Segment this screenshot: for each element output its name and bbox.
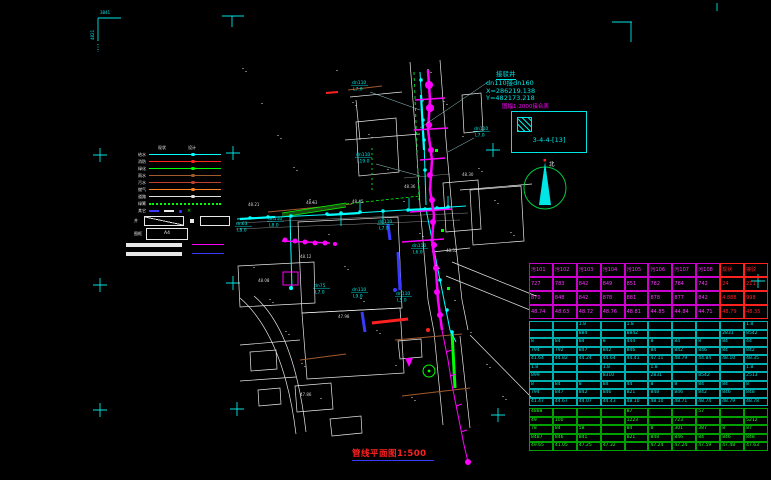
corner-text-side: 4821 — [90, 29, 95, 40]
legend-row-label: 消防 — [126, 159, 146, 165]
blue-line-icon — [192, 253, 224, 254]
table-cell: 84 — [720, 381, 744, 390]
legend-shape-label: 井 — [126, 218, 138, 224]
table-cell: 842 — [577, 389, 601, 398]
table-cell: 2513 — [744, 372, 768, 381]
legend-symbol-label: 其它 — [126, 208, 146, 214]
table-cell: 44 — [744, 338, 768, 347]
table-cell: 211 — [744, 277, 768, 291]
legend-line-marker — [191, 167, 195, 170]
table-cell — [696, 364, 720, 373]
micro-text-speck — [446, 104, 448, 105]
drawing-title-block: 管线平面图1:500 — [352, 447, 434, 461]
micro-text-speck — [419, 233, 421, 234]
table-cell: 4888 — [529, 408, 553, 417]
spot-elevation: 48.08 — [258, 278, 270, 283]
micro-text-speck — [269, 299, 271, 300]
micro-text-speck — [462, 136, 464, 137]
table-cell: 污105 — [625, 263, 649, 277]
grid-cross-icon — [93, 148, 107, 162]
micro-text-speck — [414, 400, 416, 401]
title-underline — [352, 460, 434, 461]
table-cell: 899 — [529, 372, 553, 381]
table-cell: 878 — [601, 291, 625, 305]
table-cell: 84 — [553, 425, 577, 434]
table-cell: 444 — [625, 338, 649, 347]
table-cell — [601, 321, 625, 330]
table-cell: 44.67 — [553, 398, 577, 407]
table-cell: 44.82 — [553, 355, 577, 364]
table-cell: 884 — [577, 330, 601, 339]
table-cell — [553, 321, 577, 330]
table-cell — [696, 417, 720, 426]
micro-text-speck — [502, 396, 504, 397]
table-cell: 8 — [648, 338, 672, 347]
micro-text-speck — [494, 200, 496, 201]
micro-text-speck — [245, 71, 247, 72]
legend-row-label: 给水 — [126, 152, 146, 158]
table-cell: 47.32 — [601, 442, 625, 451]
table-cell — [577, 408, 601, 417]
legend-header-existing: 现状 — [158, 145, 166, 151]
table-cell: 742 — [696, 277, 720, 291]
legend-symbol-row: 其它 × — [126, 207, 236, 215]
legend-a4-row: 图框 A4 — [126, 227, 236, 240]
table-cell: 47.11 — [648, 355, 672, 364]
table-cell: 48.35 — [744, 355, 768, 364]
legend-line-sample — [149, 182, 221, 183]
legend-line-sample — [149, 175, 221, 176]
micro-text-speck — [242, 68, 244, 69]
table-cell: 48.35 — [744, 305, 768, 319]
pipe-callouts: dn110L7.0dn110L7.0dn110L19.0dn63L8.0dn11… — [235, 80, 490, 304]
table-cell: 846 — [601, 389, 625, 398]
table-cell: 848 — [648, 434, 672, 443]
table-cell: 49.65 — [529, 442, 553, 451]
table-cell: 846 — [696, 347, 720, 356]
sewer-pipes — [282, 70, 471, 465]
table-cell: 100 — [553, 417, 577, 426]
micro-text-speck — [253, 267, 255, 268]
table-cell: 1.8 — [601, 364, 625, 373]
legend-line-marker — [191, 153, 195, 156]
table-cell: 821 — [625, 389, 649, 398]
table-cell: 84 — [625, 425, 649, 434]
table-cell: 污106 — [648, 263, 672, 277]
table-cell: 870 — [529, 291, 553, 305]
micro-text-speck — [470, 332, 472, 333]
table-cell: 污108 — [696, 263, 720, 277]
spot-elevation: 48.12 — [300, 254, 312, 259]
svg-text:L19.0: L19.0 — [357, 159, 370, 165]
sheet-hatch-icon — [517, 117, 532, 132]
micro-text-speck — [395, 365, 397, 366]
table-cell: 1.8 — [648, 364, 672, 373]
spot-elevation: 48.45 — [352, 199, 364, 204]
table-cell: 84 — [672, 338, 696, 347]
svg-text:L5.0: L5.0 — [397, 298, 407, 304]
table-cell — [720, 408, 744, 417]
table-cell: 48.10 — [720, 355, 744, 364]
well-data-table: 污101污102污103污104污105污106污107污108现状接驳7277… — [529, 263, 768, 453]
table-cell: 851 — [625, 277, 649, 291]
box-symbol-icon — [200, 216, 230, 226]
table-cell: 881 — [625, 291, 649, 305]
micro-text-speck — [513, 235, 515, 236]
legend-row: 道路 — [126, 193, 236, 200]
table-cell: 842 — [577, 277, 601, 291]
table-cell: 842 — [696, 389, 720, 398]
table-cell: 1223 — [625, 417, 649, 426]
table-cell: 301 — [672, 425, 696, 434]
table-cell: 44.84 — [672, 305, 696, 319]
table-cell — [672, 408, 696, 417]
table-cell: 57 — [696, 408, 720, 417]
legend-row-label: 污水 — [126, 180, 146, 186]
legend-line-sample — [149, 189, 221, 190]
table-cell: 污103 — [577, 263, 601, 277]
table-cell: 846 — [625, 347, 649, 356]
table-cell — [625, 364, 649, 373]
grid-cross-icon — [486, 143, 500, 157]
table-cell — [696, 330, 720, 339]
grid-cross-icon — [93, 278, 107, 292]
table-section-green: 4888875749100122372352127884588483013878… — [529, 408, 768, 451]
magenta-line-icon — [192, 244, 224, 245]
table-cell — [529, 321, 553, 330]
table-cell: 1.8 — [529, 364, 553, 373]
table-cell: 821 — [625, 434, 649, 443]
table-cell: 污107 — [672, 263, 696, 277]
table-cell: 2831 — [648, 372, 672, 381]
micro-text-speck — [427, 69, 429, 70]
table-cell: 58 — [577, 425, 601, 434]
table-cell — [601, 434, 625, 443]
table-cell: 8 — [577, 381, 601, 390]
table-cell: 848 — [744, 434, 768, 443]
micro-text-speck — [376, 330, 378, 331]
table-cell — [601, 417, 625, 426]
micro-text-speck — [435, 265, 437, 266]
table-cell: 846 — [720, 434, 744, 443]
table-cell: 47.24 — [672, 442, 696, 451]
micro-text-speck — [360, 298, 362, 299]
table-cell: 48.74 — [696, 398, 720, 407]
table-cell: 接驳 — [744, 263, 768, 277]
table-cell: 847 — [553, 389, 577, 398]
table-cell — [720, 417, 744, 426]
table-cell — [577, 417, 601, 426]
micro-text-speck — [285, 331, 287, 332]
table-cell: 849 — [601, 277, 625, 291]
micro-text-speck — [352, 102, 354, 103]
table-cell: 48.10 — [625, 398, 649, 407]
table-cell — [648, 330, 672, 339]
white-dash-icon — [164, 210, 174, 212]
table-cell: 848 — [648, 389, 672, 398]
table-cell — [529, 330, 553, 339]
table-cell — [720, 321, 744, 330]
micro-text-speck — [497, 203, 499, 204]
sheet-index-box: 3-4-4-[13] — [511, 111, 587, 153]
micro-text-speck — [347, 269, 349, 270]
table-cell: 848 — [744, 389, 768, 398]
table-cell: 842 — [601, 347, 625, 356]
table-cell: 48.72 — [577, 305, 601, 319]
table-cell: 84 — [720, 338, 744, 347]
table-cell: 44.85 — [648, 305, 672, 319]
table-cell: 84 — [696, 434, 720, 443]
spot-elevation: 48.30 — [462, 172, 474, 177]
micro-text-speck — [309, 199, 311, 200]
table-cell: 1.8 — [577, 321, 601, 330]
table-cell — [720, 364, 744, 373]
pipe-callout: dn110L5.0 — [395, 291, 412, 304]
table-cell — [672, 372, 696, 381]
micro-text-speck — [272, 302, 274, 303]
legend-header-design: 设计 — [188, 145, 196, 151]
legend-bar-row-1 — [126, 240, 236, 249]
legend-a4-label: 图框 — [126, 231, 142, 237]
table-cell: 847 — [577, 347, 601, 356]
table-cell: 44.41 — [625, 355, 649, 364]
table-cell — [648, 408, 672, 417]
north-label: 北 — [549, 160, 555, 168]
micro-text-speck — [328, 234, 330, 235]
micro-text-speck — [301, 363, 303, 364]
micro-text-speck — [438, 268, 440, 269]
micro-text-speck — [379, 333, 381, 334]
table-cell: 48.79 — [720, 305, 744, 319]
registration-marks — [98, 3, 717, 52]
map-text-speckles — [242, 68, 515, 401]
table-cell: 723 — [672, 417, 696, 426]
pipe-callout: dn110L7.0 — [351, 80, 368, 93]
table-cell: 44.43 — [601, 398, 625, 407]
table-cell — [553, 364, 577, 373]
micro-text-speck — [293, 167, 295, 168]
table-cell: 87 — [625, 408, 649, 417]
spot-elevation: 48.36 — [404, 184, 416, 189]
table-cell: 48.76 — [601, 305, 625, 319]
table-cell — [744, 408, 768, 417]
table-cell: 8 — [696, 338, 720, 347]
table-cell: 842 — [672, 347, 696, 356]
table-cell: 842 — [744, 347, 768, 356]
table-cell: 842 — [577, 291, 601, 305]
micro-text-speck — [510, 232, 512, 233]
micro-text-speck — [430, 72, 432, 73]
table-section-magenta: 污101污102污103污104污105污106污107污108现状接驳7277… — [529, 263, 768, 319]
micro-text-speck — [277, 135, 279, 136]
building-outlines — [238, 60, 536, 436]
table-cell: 24 — [720, 277, 744, 291]
pipe-callout: dn110L7.0 — [377, 219, 394, 232]
micro-text-speck — [355, 105, 357, 106]
legend-line-marker — [191, 174, 195, 177]
table-cell: 48.63 — [553, 305, 577, 319]
pipe-callout: dn75L7.0 — [313, 283, 330, 296]
table-section-cyan: 1.81.81.88848842283185428848484448848844… — [529, 321, 768, 406]
table-cell: 877 — [672, 291, 696, 305]
legend-line-sample — [149, 196, 221, 197]
micro-text-speck — [280, 138, 282, 139]
micro-text-speck — [422, 236, 424, 237]
svg-text:L7.0: L7.0 — [315, 290, 325, 296]
table-cell: 842 — [696, 291, 720, 305]
legend-shape-row: 井 — [126, 215, 236, 227]
legend-line-sample — [149, 154, 221, 155]
micro-text-speck — [312, 202, 314, 203]
table-cell: 848 — [553, 291, 577, 305]
table-cell: 8 — [744, 381, 768, 390]
sheet-index-note: 图幅1:2000接合表 — [502, 102, 549, 110]
table-cell: 8 — [672, 381, 696, 390]
table-cell: 41.64 — [529, 355, 553, 364]
table-cell: 48.10 — [648, 398, 672, 407]
micro-text-speck — [336, 70, 338, 71]
legend-row: 燃气 — [126, 186, 236, 193]
legend-row-label: 雨水 — [126, 173, 146, 179]
spot-elevation: 47.86 — [300, 392, 312, 397]
svg-text:L7.0: L7.0 — [353, 87, 363, 93]
legend-line-marker — [191, 160, 195, 163]
legend-row-label: 道路 — [126, 194, 146, 200]
micro-text-speck — [363, 301, 365, 302]
corner-text-top: 3841 — [100, 10, 111, 15]
table-cell: 8842 — [625, 330, 649, 339]
table-cell: 47.25 — [577, 442, 601, 451]
svg-text:L8.0: L8.0 — [269, 223, 279, 229]
table-cell: 841 — [577, 434, 601, 443]
table-cell — [577, 372, 601, 381]
pipe-callout: dn110L19.0 — [355, 152, 372, 165]
table-cell: 1.8 — [625, 321, 649, 330]
white-bar-icon — [126, 243, 182, 247]
svg-text:L7.0: L7.0 — [475, 133, 485, 139]
table-cell: 387 — [696, 425, 720, 434]
spot-elevation: 48.21 — [248, 202, 260, 207]
legend-line-sample — [149, 203, 221, 205]
table-cell: 8542 — [744, 330, 768, 339]
micro-text-speck — [478, 168, 480, 169]
table-cell — [577, 364, 601, 373]
table-cell: 783 — [553, 277, 577, 291]
table-cell — [672, 364, 696, 373]
table-cell: 5212 — [744, 417, 768, 426]
table-cell — [553, 372, 577, 381]
table-cell: 782 — [648, 277, 672, 291]
table-cell: 8 — [648, 425, 672, 434]
table-cell: 998 — [744, 291, 768, 305]
pipe-callout: dn110L7.0 — [473, 126, 490, 139]
micro-text-speck — [368, 134, 370, 135]
table-cell: 8 — [601, 338, 625, 347]
drawing-title: 管线平面图1:500 — [352, 447, 434, 459]
table-cell: 8487 — [529, 434, 553, 443]
pipe-callout: dn110L9.0 — [351, 287, 368, 300]
table-cell: 48.81 — [625, 305, 649, 319]
legend-row-label: 绿化 — [126, 166, 146, 172]
micro-text-speck — [387, 169, 389, 170]
legend-row: 雨水 — [126, 172, 236, 179]
table-cell: 8 — [529, 338, 553, 347]
micro-text-speck — [403, 201, 405, 202]
table-cell: 48.79 — [720, 398, 744, 407]
table-cell: 727 — [529, 277, 553, 291]
micro-text-speck — [304, 366, 306, 367]
table-cell: 44.84 — [696, 355, 720, 364]
micro-text-speck — [371, 137, 373, 138]
table-cell: 792 — [553, 347, 577, 356]
table-cell: 8 — [529, 381, 553, 390]
table-cell: 846 — [672, 389, 696, 398]
table-cell: 784 — [672, 277, 696, 291]
legend: 现状 设计 给水消防绿化雨水污水燃气道路绿篱 其它 × 井 图框 A4 — [126, 145, 236, 258]
pipe-callout: dn110L6.0 — [411, 243, 428, 256]
table-cell: 污101 — [529, 263, 553, 277]
table-cell: 污104 — [601, 263, 625, 277]
micro-text-speck — [261, 103, 263, 104]
table-cell: 41.47 — [529, 398, 553, 407]
table-cell — [601, 330, 625, 339]
micro-text-speck — [411, 397, 413, 398]
table-cell: 78 — [529, 425, 553, 434]
table-cell — [553, 408, 577, 417]
table-cell: 49 — [529, 417, 553, 426]
table-cell: 47.48 — [720, 442, 744, 451]
table-cell: 48.79 — [672, 355, 696, 364]
table-cell: 47.24 — [648, 442, 672, 451]
table-cell: 47.63 — [744, 442, 768, 451]
spot-elevation: 48.63 — [306, 200, 318, 205]
table-cell: 48.71 — [672, 398, 696, 407]
green-cross-icon: × — [187, 208, 191, 214]
blue-utility-marks — [362, 224, 400, 332]
table-cell: 1.8 — [744, 321, 768, 330]
legend-bar-row-2 — [126, 249, 236, 258]
table-cell: 48.74 — [529, 305, 553, 319]
cad-canvas: 北 3841 4821 dn110L7.0dn110L7.0dn110L19.0… — [0, 0, 771, 480]
table-cell: 846 — [553, 434, 577, 443]
table-cell: 8310 — [601, 372, 625, 381]
table-cell — [720, 372, 744, 381]
grid-cross-icon — [226, 276, 240, 290]
table-cell: 44.07 — [577, 398, 601, 407]
table-cell: 84 — [601, 381, 625, 390]
pipe-callout: dn63L8.0 — [235, 221, 252, 234]
micro-text-speck — [486, 364, 488, 365]
table-cell: 44 — [625, 381, 649, 390]
micro-text-speck — [443, 101, 445, 102]
spot-elevation: 47.98 — [338, 314, 350, 319]
legend-line-sample — [149, 168, 221, 169]
table-cell: 污102 — [553, 263, 577, 277]
table-cell: 现状 — [720, 263, 744, 277]
table-cell: 4.888 — [720, 291, 744, 305]
legend-row: 污水 — [126, 179, 236, 186]
table-cell — [601, 408, 625, 417]
legend-row: 绿篱 — [126, 200, 236, 207]
svg-text:L8.0: L8.0 — [237, 228, 247, 234]
svg-text:L7.0: L7.0 — [379, 226, 389, 232]
svg-text:L6.0: L6.0 — [413, 250, 423, 256]
legend-row: 给水 — [126, 151, 236, 158]
table-cell: 1.8 — [744, 364, 768, 373]
micro-text-speck — [454, 300, 456, 301]
legend-line-marker — [191, 181, 195, 184]
grid-cross-icon — [491, 408, 505, 422]
